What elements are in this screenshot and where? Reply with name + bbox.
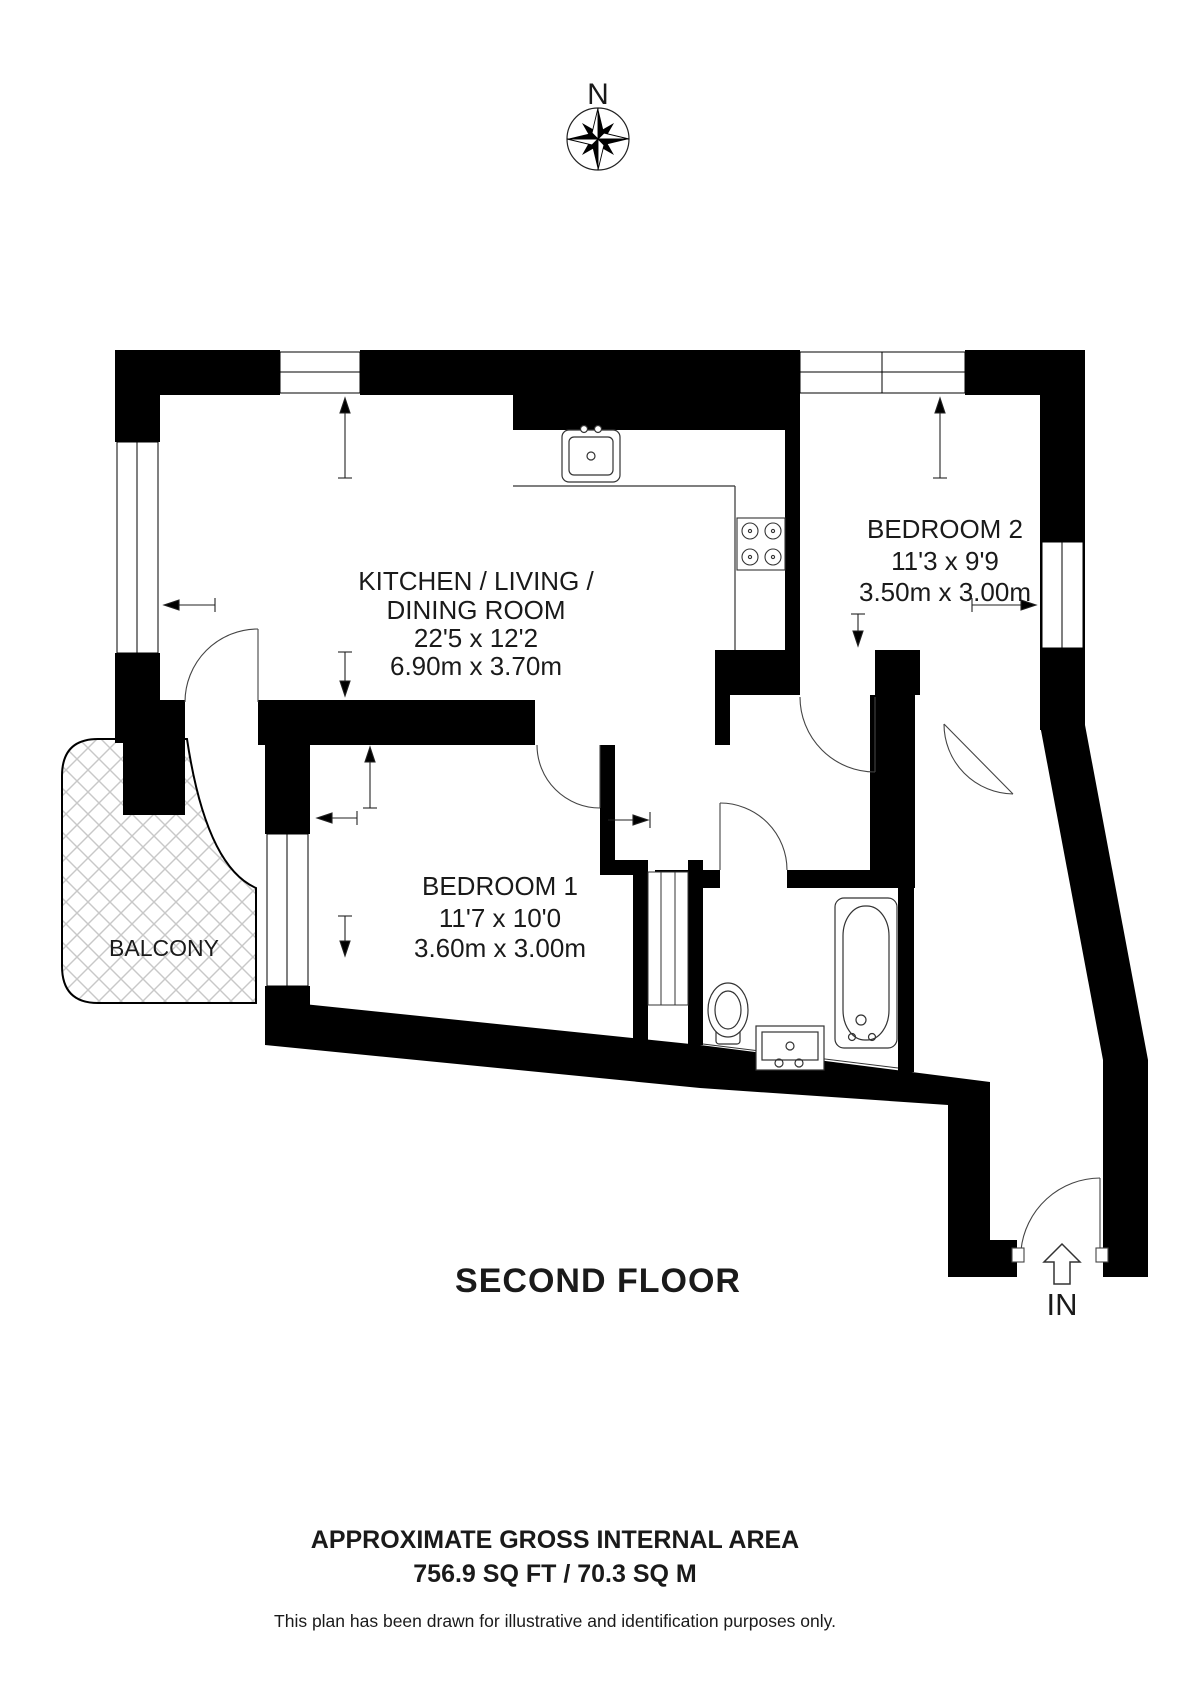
wall-right-bed2 xyxy=(1040,350,1085,730)
entrance-arrow-icon xyxy=(1044,1244,1080,1284)
wall-bath-right xyxy=(898,870,914,1072)
wall-kitchen-bed2-divider xyxy=(785,395,800,650)
wall-mid-right xyxy=(875,650,920,695)
wall-balcony-upper xyxy=(265,737,310,834)
compass-north-label: N xyxy=(587,78,609,111)
door-arc-bedroom1 xyxy=(537,745,600,808)
bathtub-icon xyxy=(835,898,897,1048)
bedroom2-dims-m: 3.50m x 3.00m xyxy=(859,577,1031,607)
footer-area-value: 756.9 SQ FT / 70.3 SQ M xyxy=(413,1560,696,1588)
wall-corridor-right xyxy=(1103,1060,1148,1277)
wall-east-slant xyxy=(1040,725,1148,1060)
floorplan-page: N BALCONY xyxy=(0,0,1200,1698)
wall-bedroom1-right xyxy=(600,745,615,875)
door-arc-bedroom2 xyxy=(800,697,875,772)
wall-sw-pier xyxy=(123,700,185,815)
walls xyxy=(115,350,1148,1277)
footer: APPROXIMATE GROSS INTERNAL AREA 756.9 SQ… xyxy=(274,1526,836,1631)
entrance-marker: IN xyxy=(1044,1244,1080,1322)
window-bedroom2-top xyxy=(800,352,965,393)
wall-bedroom1-top xyxy=(258,700,535,745)
basin-icon xyxy=(756,1026,824,1070)
bedroom1-dims-m: 3.60m x 3.00m xyxy=(414,933,586,963)
arrow-bedroom2-down xyxy=(851,614,865,646)
kitchen-label-line2: DINING ROOM xyxy=(386,595,565,625)
window-kitchen-left xyxy=(117,442,158,653)
window-bedroom2-right xyxy=(1042,542,1083,648)
window-bedroom1-balcony xyxy=(267,834,308,986)
arrow-bedroom1-up xyxy=(363,747,377,808)
floorplan-canvas: N BALCONY xyxy=(0,0,1200,1698)
balcony-label: BALCONY xyxy=(109,935,219,961)
arrow-kitchen-window-left xyxy=(164,598,215,612)
arrow-kitchen-window-up xyxy=(338,398,352,478)
arrow-bedroom1-left xyxy=(317,811,357,825)
bathroom-fixtures xyxy=(703,898,898,1070)
wardrobe xyxy=(648,872,688,1005)
toilet-icon xyxy=(708,983,748,1044)
bedroom1-dims-ft: 11'7 x 10'0 xyxy=(439,903,561,933)
wall-kitchen-band xyxy=(513,395,785,430)
floor-title: SECOND FLOOR xyxy=(455,1262,741,1300)
wall-top-mid xyxy=(360,350,800,395)
wall-closet-right xyxy=(688,860,703,1045)
compass-rose-icon: N xyxy=(567,78,629,170)
footer-area-title: APPROXIMATE GROSS INTERNAL AREA xyxy=(311,1526,799,1554)
window-kitchen-top xyxy=(280,352,360,393)
arrow-bedroom2-window-up xyxy=(933,398,947,478)
kitchen-dims-ft: 22'5 x 12'2 xyxy=(414,623,538,653)
arrow-bedroom1-down xyxy=(338,916,352,956)
door-arc-hall xyxy=(944,724,1013,794)
wall-closet-left xyxy=(633,860,648,1045)
sink-icon xyxy=(562,426,620,483)
door-arc-balcony xyxy=(185,629,258,702)
door-arc-bathroom xyxy=(720,803,787,870)
hob-icon xyxy=(737,518,785,570)
bedroom2-dims-ft: 11'3 x 9'9 xyxy=(891,546,999,576)
wall-hall xyxy=(870,695,915,875)
footer-disclaimer: This plan has been drawn for illustrativ… xyxy=(274,1611,836,1631)
wall-bath-top-b xyxy=(787,870,915,888)
entrance-label: IN xyxy=(1047,1287,1078,1322)
bedroom1-label: BEDROOM 1 xyxy=(422,871,578,901)
arrow-living-down xyxy=(338,652,352,696)
kitchen-label-line1: KITCHEN / LIVING / xyxy=(358,566,594,596)
bedroom2-label: BEDROOM 2 xyxy=(867,514,1023,544)
wall-mid-connector xyxy=(715,650,730,745)
wall-left-upper xyxy=(115,350,160,442)
kitchen-dims-m: 6.90m x 3.70m xyxy=(390,651,562,681)
